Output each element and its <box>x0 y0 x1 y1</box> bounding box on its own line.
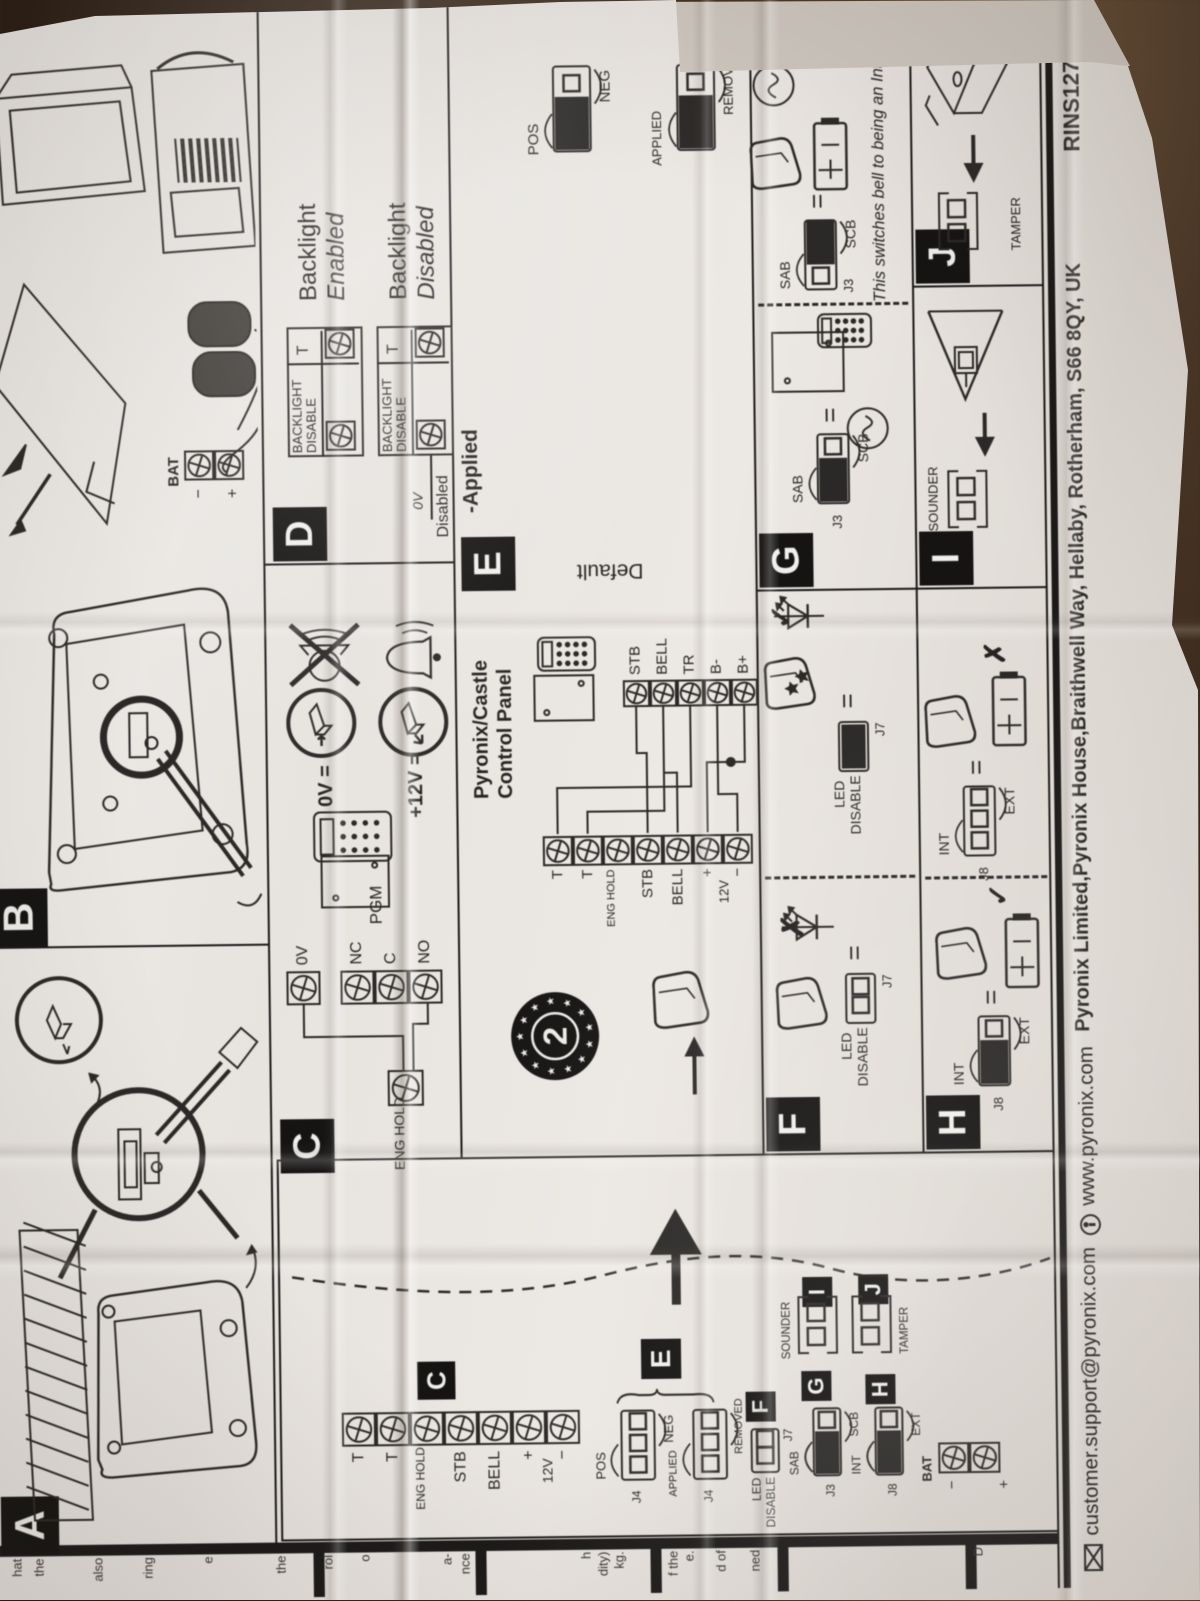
j7-jumper <box>750 1427 781 1473</box>
section-label-h: H <box>865 1374 895 1404</box>
terminal-label: T <box>580 870 596 930</box>
disable-label: DISABLE <box>848 780 864 834</box>
screw-terminal <box>324 329 354 359</box>
terminal-label: + <box>521 1450 538 1508</box>
cutoff-text-fragment: nce <box>457 1553 472 1593</box>
tamper-label: TAMPER <box>1009 197 1024 250</box>
cutoff-text-fragment: D <box>970 1547 985 1587</box>
j8-name-label: J8 <box>977 867 991 881</box>
equals-sign: = <box>815 407 843 423</box>
border-line <box>446 0 462 1159</box>
led-label: LED <box>751 1478 764 1508</box>
bat-label: BAT <box>920 1456 934 1482</box>
section-label-i: I <box>919 531 974 586</box>
section-label-h: H <box>926 1095 981 1150</box>
j7-jumper-open <box>844 972 877 1024</box>
cutoff-text-fragment: kg. <box>611 1551 626 1591</box>
panel-terminal-label: STB <box>627 646 644 675</box>
int-label: INT <box>951 1063 966 1086</box>
applied-removed-jumper <box>675 63 716 151</box>
brace-arc <box>804 1441 814 1473</box>
cutoff-text-fragment: the <box>31 1558 46 1598</box>
applied-label: APPLIED <box>668 1450 680 1497</box>
brace-arc <box>796 253 806 287</box>
legend-brace <box>615 1386 715 1407</box>
svg-text:2: 2 <box>537 1027 574 1046</box>
j3-jumper-scb <box>803 219 838 291</box>
footer-email: customer.support@pyronix.com <box>1078 1247 1104 1536</box>
section-label-g: G <box>801 1371 831 1401</box>
j8-jumper <box>874 1406 905 1476</box>
bell-terminal-strip <box>543 834 753 867</box>
equals-sign: = <box>962 760 990 776</box>
disable-label: DISABLE <box>765 1477 779 1527</box>
cutoff-text-fragment: f the <box>665 1551 680 1591</box>
cutoff-text-fragment: ned <box>747 1550 762 1590</box>
section-label-c: C <box>417 1361 455 1399</box>
disable-label: DISABLE <box>394 397 409 452</box>
j8-jumper-int <box>977 1015 1012 1087</box>
j7-name-label: J7 <box>873 722 887 736</box>
bat-neg-label: − <box>190 489 207 499</box>
spec-row-divider <box>475 1549 487 1595</box>
equals-sign: = <box>977 989 1005 1005</box>
pgm-terminal-label: C <box>382 952 399 964</box>
cross-mark: ✗ <box>980 641 1011 665</box>
terminal-label: ENG HOLD <box>606 869 618 929</box>
applied-label: APPLIED <box>650 111 665 166</box>
screw-terminal <box>416 419 446 449</box>
keypad-icon <box>312 810 393 863</box>
tamper-pads-icon <box>848 1292 895 1357</box>
section-label-f: F <box>746 1391 776 1421</box>
neg-label: NEG <box>597 70 614 103</box>
section-label-f: F <box>766 1097 821 1152</box>
int-label: INT <box>850 1455 863 1475</box>
panel-title: Control Panel <box>495 669 518 799</box>
brace-arc <box>969 1049 979 1083</box>
sab-label: SAB <box>778 261 793 289</box>
instruction-leaflet-paper: hatthealsoringetheroloa-ncehdity)kg.f th… <box>0 0 1200 1600</box>
screw-terminal <box>326 421 356 451</box>
brace-arc <box>955 819 965 853</box>
bat-pos-label: + <box>224 489 241 499</box>
terminal-label: BELL <box>487 1451 504 1509</box>
jumper-column-header: -Applied <box>460 429 484 513</box>
bat-pos-label: + <box>997 1480 1013 1489</box>
cross-mark: ✗ <box>778 914 811 940</box>
leaflet-document: hatthealsoringetheroloa-ncehdity)kg.f th… <box>0 0 1196 1601</box>
cutoff-text-fragment: e. <box>681 1550 696 1590</box>
tamper-arrow <box>960 135 987 183</box>
j7-jumper-fitted <box>837 720 870 772</box>
c-d-divider <box>265 561 455 565</box>
cutoff-text-fragment: d of <box>713 1550 728 1590</box>
eng-hold-label: ENG HOLD <box>392 1112 407 1170</box>
backlight-state-label: Backlight <box>295 204 322 302</box>
speaker-muted-icon <box>284 620 365 689</box>
orientation-arrow <box>643 1206 708 1305</box>
j3-jumper <box>812 1407 843 1477</box>
cutoff-text-fragment: dity) <box>595 1551 610 1591</box>
neg-label: NEG <box>662 1415 676 1443</box>
terminal-label: T <box>385 1452 402 1510</box>
check-mark: ✓ <box>983 883 1014 907</box>
circled-2-emblem: 2 <box>511 992 600 1081</box>
horn-speaker-icon <box>924 307 1011 408</box>
disable-label: DISABLE <box>855 1032 871 1086</box>
j3-name-label: J3 <box>825 1484 838 1497</box>
email-icon <box>1083 1543 1103 1571</box>
panel-title: Pyronix/Castle <box>471 660 494 799</box>
scb-label: SCB <box>843 220 858 249</box>
sounder-arrow <box>972 413 999 457</box>
sab-label: SAB <box>790 475 805 503</box>
keypad-icon <box>816 312 872 349</box>
keypad-icon <box>536 636 596 673</box>
brace-arc <box>808 467 818 501</box>
cutoff-text-fragment: o <box>357 1554 372 1594</box>
bell-cover-icon <box>746 133 805 192</box>
cutoff-text-fragment: the <box>273 1555 288 1595</box>
j7-name-label: J7 <box>880 974 894 988</box>
tamper-label: TAMPER <box>898 1307 911 1354</box>
bell-cover-icon <box>772 973 831 1032</box>
terminal-12v-label: 12V <box>540 1458 556 1498</box>
terminal-label: + <box>700 868 716 928</box>
cutoff-text-fragment: h <box>578 1552 593 1592</box>
terminal-label: ENG HOLD <box>414 1452 427 1510</box>
battery-icon <box>810 116 851 190</box>
c-wires <box>288 965 450 1097</box>
brace-arc <box>866 1440 876 1472</box>
bell-cover-icon <box>921 691 980 750</box>
j8-name-label: J8 <box>887 1483 900 1496</box>
terminal-label: STB <box>640 869 656 929</box>
backlight-state-label: Backlight <box>385 202 412 300</box>
terminal-12v-label: 12V <box>717 880 732 920</box>
cutoff-text-fragment: ring <box>140 1557 155 1597</box>
link-fitted-circle <box>285 687 358 760</box>
f-divider <box>765 875 915 880</box>
terminal-label: T <box>351 1452 368 1510</box>
sab-label: SAB <box>788 1451 801 1475</box>
j7-name-label: J7 <box>782 1429 795 1442</box>
j3-name-label: J3 <box>831 515 845 529</box>
section-label-d: D <box>273 507 328 562</box>
terminal-label: − <box>555 1450 572 1508</box>
g-divider <box>758 302 908 307</box>
bell-cover-icon <box>648 966 713 1031</box>
terminal-label: BELL <box>670 869 686 929</box>
terminal-label: − <box>730 868 746 928</box>
ext-label: EXT <box>1002 787 1017 814</box>
cutoff-text-fragment: also <box>90 1558 105 1598</box>
t-label: T <box>385 344 402 354</box>
pgm-terminal-label: NO <box>416 940 434 964</box>
cutoff-text-fragment: rol <box>320 1555 335 1595</box>
j4-name-label: J4 <box>703 1490 716 1503</box>
spec-row-divider <box>650 1547 662 1593</box>
j4-name-label: J4 <box>631 1490 644 1503</box>
scb-label: SCB <box>848 1412 861 1437</box>
terminal-label: STB <box>453 1451 470 1509</box>
bat-label: BAT <box>166 457 183 487</box>
overview-bell-terminal-strip <box>342 1410 580 1447</box>
j4-jumper-appliedremoved <box>692 1408 729 1480</box>
panel-terminal-label: B- <box>709 659 725 674</box>
footer-address: Pyronix Limited,Pyronix House,Braithwell… <box>1064 263 1095 1032</box>
sounder-pads-icon <box>944 467 991 532</box>
int-label: INT <box>937 833 952 856</box>
bat-neg-label: − <box>945 1480 961 1489</box>
spec-row-divider <box>777 1545 789 1591</box>
pos-label: POS <box>594 1452 608 1480</box>
ext-label: EXT <box>1017 1017 1032 1044</box>
brace-arc <box>544 113 554 149</box>
brace-arc <box>610 1443 620 1477</box>
battery-icon <box>989 670 1030 746</box>
backlight-state-label: Disabled <box>413 206 440 300</box>
bell-ringing-icon <box>374 615 453 688</box>
t-label: T <box>295 345 312 355</box>
footer-web: www.pyronix.com <box>1075 1046 1099 1206</box>
section-label-e: E <box>461 537 516 592</box>
section-label-e: E <box>641 1339 681 1379</box>
removed-label: REMOVED <box>734 1398 747 1454</box>
brace-arc <box>668 112 678 148</box>
info-icon <box>1079 1213 1101 1235</box>
zero-v-wire <box>430 456 433 520</box>
section-label-g: G <box>759 533 814 588</box>
link-removed-circle <box>377 685 450 758</box>
panel-terminal-label: B+ <box>735 655 751 674</box>
default-label: Default <box>577 558 644 581</box>
pos-neg-jumper <box>551 65 592 153</box>
cutoff-text-fragment: a- <box>439 1553 454 1593</box>
overview-top-border <box>277 1162 284 1542</box>
j4-jumper-posneg <box>620 1409 657 1481</box>
sounder-pads-icon <box>794 1293 841 1358</box>
sounder-label: SOUNDER <box>926 466 941 531</box>
section-a-mounting-drawing <box>0 938 271 1541</box>
brace-arc <box>682 1442 692 1476</box>
pos-label: POS <box>526 124 543 156</box>
panel-terminal-label: BELL <box>654 638 671 675</box>
bell-cover-icon <box>760 653 819 712</box>
equals-sign: = <box>833 693 861 709</box>
zero-v-rule-label: 0V = <box>316 765 338 807</box>
equals-sign: = <box>803 194 831 210</box>
cutoff-text-fragment: hat <box>9 1559 24 1599</box>
bat-terminal-block <box>184 450 244 481</box>
i-j-divider <box>912 284 1044 288</box>
twelve-v-rule-label: +12V = <box>406 753 428 818</box>
tamper-pads-icon <box>935 189 982 254</box>
wire-disabled-label: Disabled <box>434 475 452 537</box>
j8-name-label: J8 <box>992 1097 1006 1111</box>
bell-cover-icon <box>932 923 991 982</box>
wire-0v-label: 0V <box>410 493 425 510</box>
j3-name-label: J3 <box>842 279 856 293</box>
led-label: LED <box>832 781 848 815</box>
cutoff-text-fragment: e <box>200 1556 215 1596</box>
photo-frame: hatthealsoringetheroloa-ncehdity)kg.f th… <box>0 0 1200 1600</box>
pgm-terminal-label: NC <box>348 941 366 964</box>
panel-terminal-label: TR <box>681 654 697 674</box>
bell-pointer-arrow <box>681 1036 708 1094</box>
sounder-label: SOUNDER <box>780 1302 793 1360</box>
equals-sign: = <box>840 945 868 961</box>
disable-label: DISABLE <box>304 398 319 453</box>
bat-legend-terminals <box>938 1442 1000 1474</box>
zero-v-label: 0V <box>294 946 312 966</box>
mains-sine-icon <box>845 406 890 451</box>
screw-terminal <box>414 327 444 357</box>
led-label: LED <box>839 1032 855 1066</box>
terminal-label: T <box>550 870 566 930</box>
section-label-c: C <box>280 1119 335 1174</box>
battery-icon <box>1002 912 1043 988</box>
e-wiring-lines <box>545 704 757 837</box>
backlight-state-label: Enabled <box>323 213 350 301</box>
j8-jumper-open <box>962 785 997 857</box>
check-mark: ✓ <box>766 604 799 630</box>
ext-label: EXT <box>910 1412 923 1436</box>
